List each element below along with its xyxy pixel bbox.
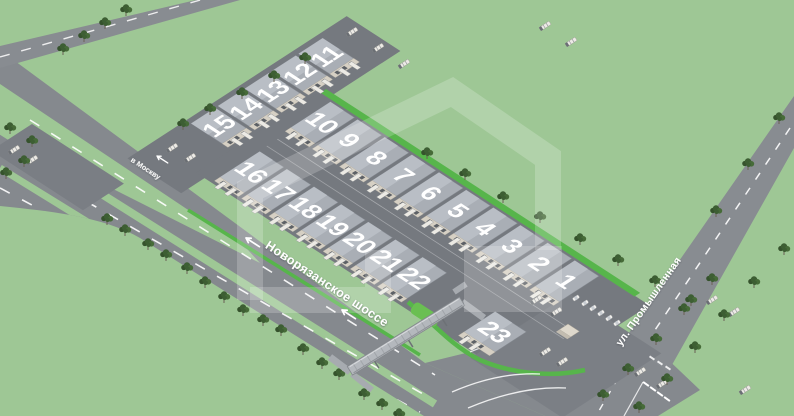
site-plan: 1098765432116171819202122111213141523 Но… [0,0,794,416]
site-plan-canvas: 1098765432116171819202122111213141523 Но… [0,0,794,416]
